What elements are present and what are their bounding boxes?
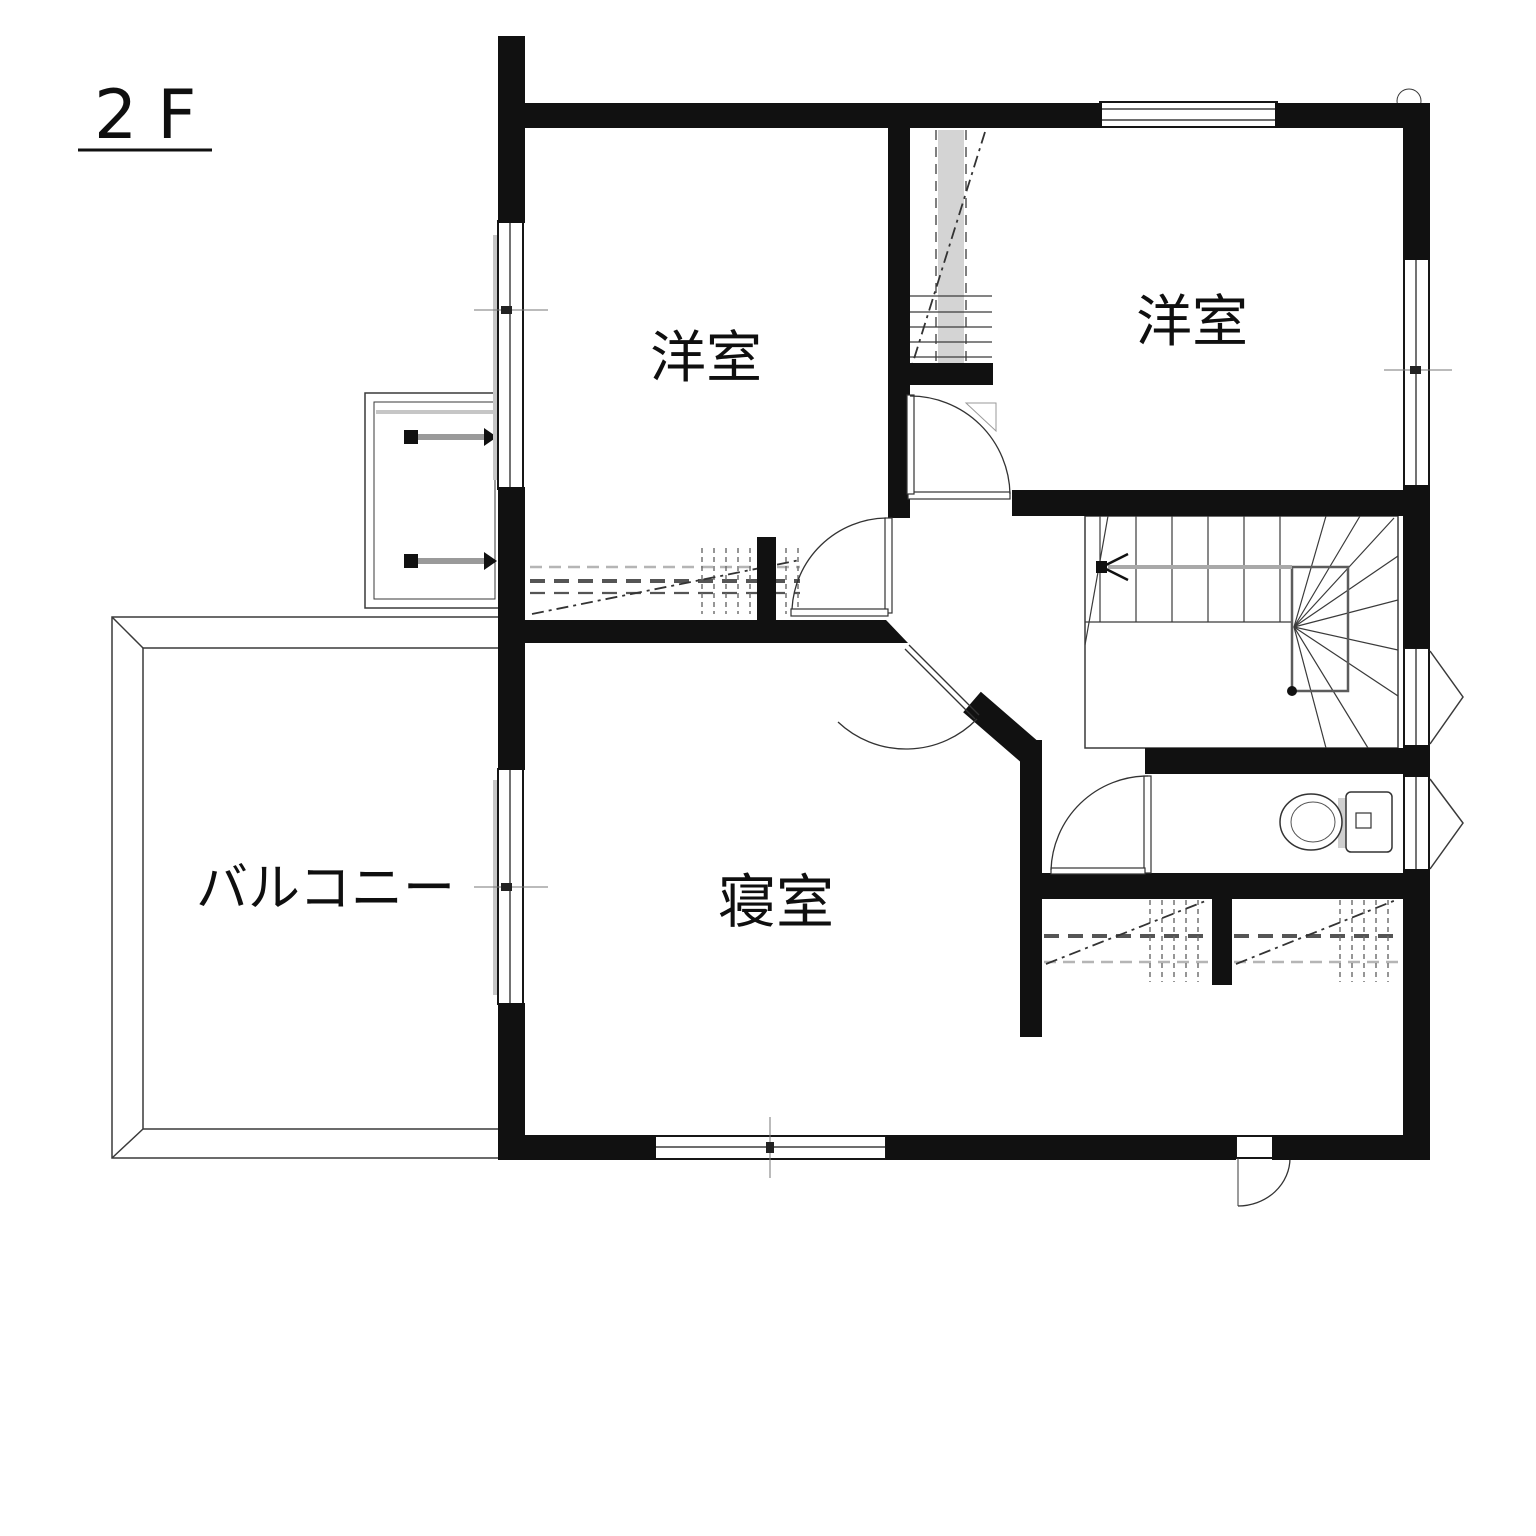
bedroom-north-wall bbox=[524, 620, 908, 643]
toilet-top-wall bbox=[1145, 748, 1403, 774]
stair-direction-arrow bbox=[1096, 554, 1292, 580]
floor-plan-page: 2F 洋室 洋室 寝室 バルコニー bbox=[0, 0, 1536, 1536]
window-toilet-casement bbox=[1404, 776, 1463, 871]
window-left-upper bbox=[495, 221, 523, 489]
room-label-western1: 洋室 bbox=[650, 326, 762, 391]
closet-left-wall bbox=[1020, 897, 1042, 1037]
closet-divider-wall bbox=[1212, 897, 1232, 985]
toilet-fixture bbox=[1280, 792, 1392, 852]
door-western1 bbox=[791, 518, 892, 616]
ladder-bay-wall bbox=[905, 363, 993, 385]
toilet-bottom-wall bbox=[1020, 873, 1403, 899]
attic-ladder bbox=[908, 130, 992, 378]
window-stair-casement bbox=[1404, 648, 1463, 747]
newel-post bbox=[1287, 686, 1297, 696]
winder-treads bbox=[1294, 516, 1398, 748]
floor-label: 2F bbox=[94, 76, 216, 155]
room-label-bedroom: 寝室 bbox=[718, 868, 834, 936]
window-top-wall bbox=[1100, 102, 1277, 127]
closet-bottom-right bbox=[1234, 900, 1398, 982]
staircase bbox=[1085, 516, 1398, 748]
floor-plan-canvas: 2F 洋室 洋室 寝室 バルコニー bbox=[0, 0, 1536, 1536]
door-bedroom bbox=[838, 645, 979, 749]
laundry-balcony bbox=[365, 393, 500, 608]
laundry-pole bbox=[404, 428, 497, 446]
room-label-western2: 洋室 bbox=[1136, 290, 1248, 355]
closet-stub-wall bbox=[757, 537, 776, 623]
door-western2 bbox=[907, 395, 1010, 499]
stair-top-wall bbox=[1012, 490, 1403, 516]
laundry-pole bbox=[404, 552, 497, 570]
room-label-balcony: バルコニー bbox=[196, 859, 455, 919]
door-toilet bbox=[1051, 776, 1151, 874]
closet-bottom-left bbox=[1044, 900, 1210, 982]
window-center-ticks bbox=[474, 306, 1452, 1178]
